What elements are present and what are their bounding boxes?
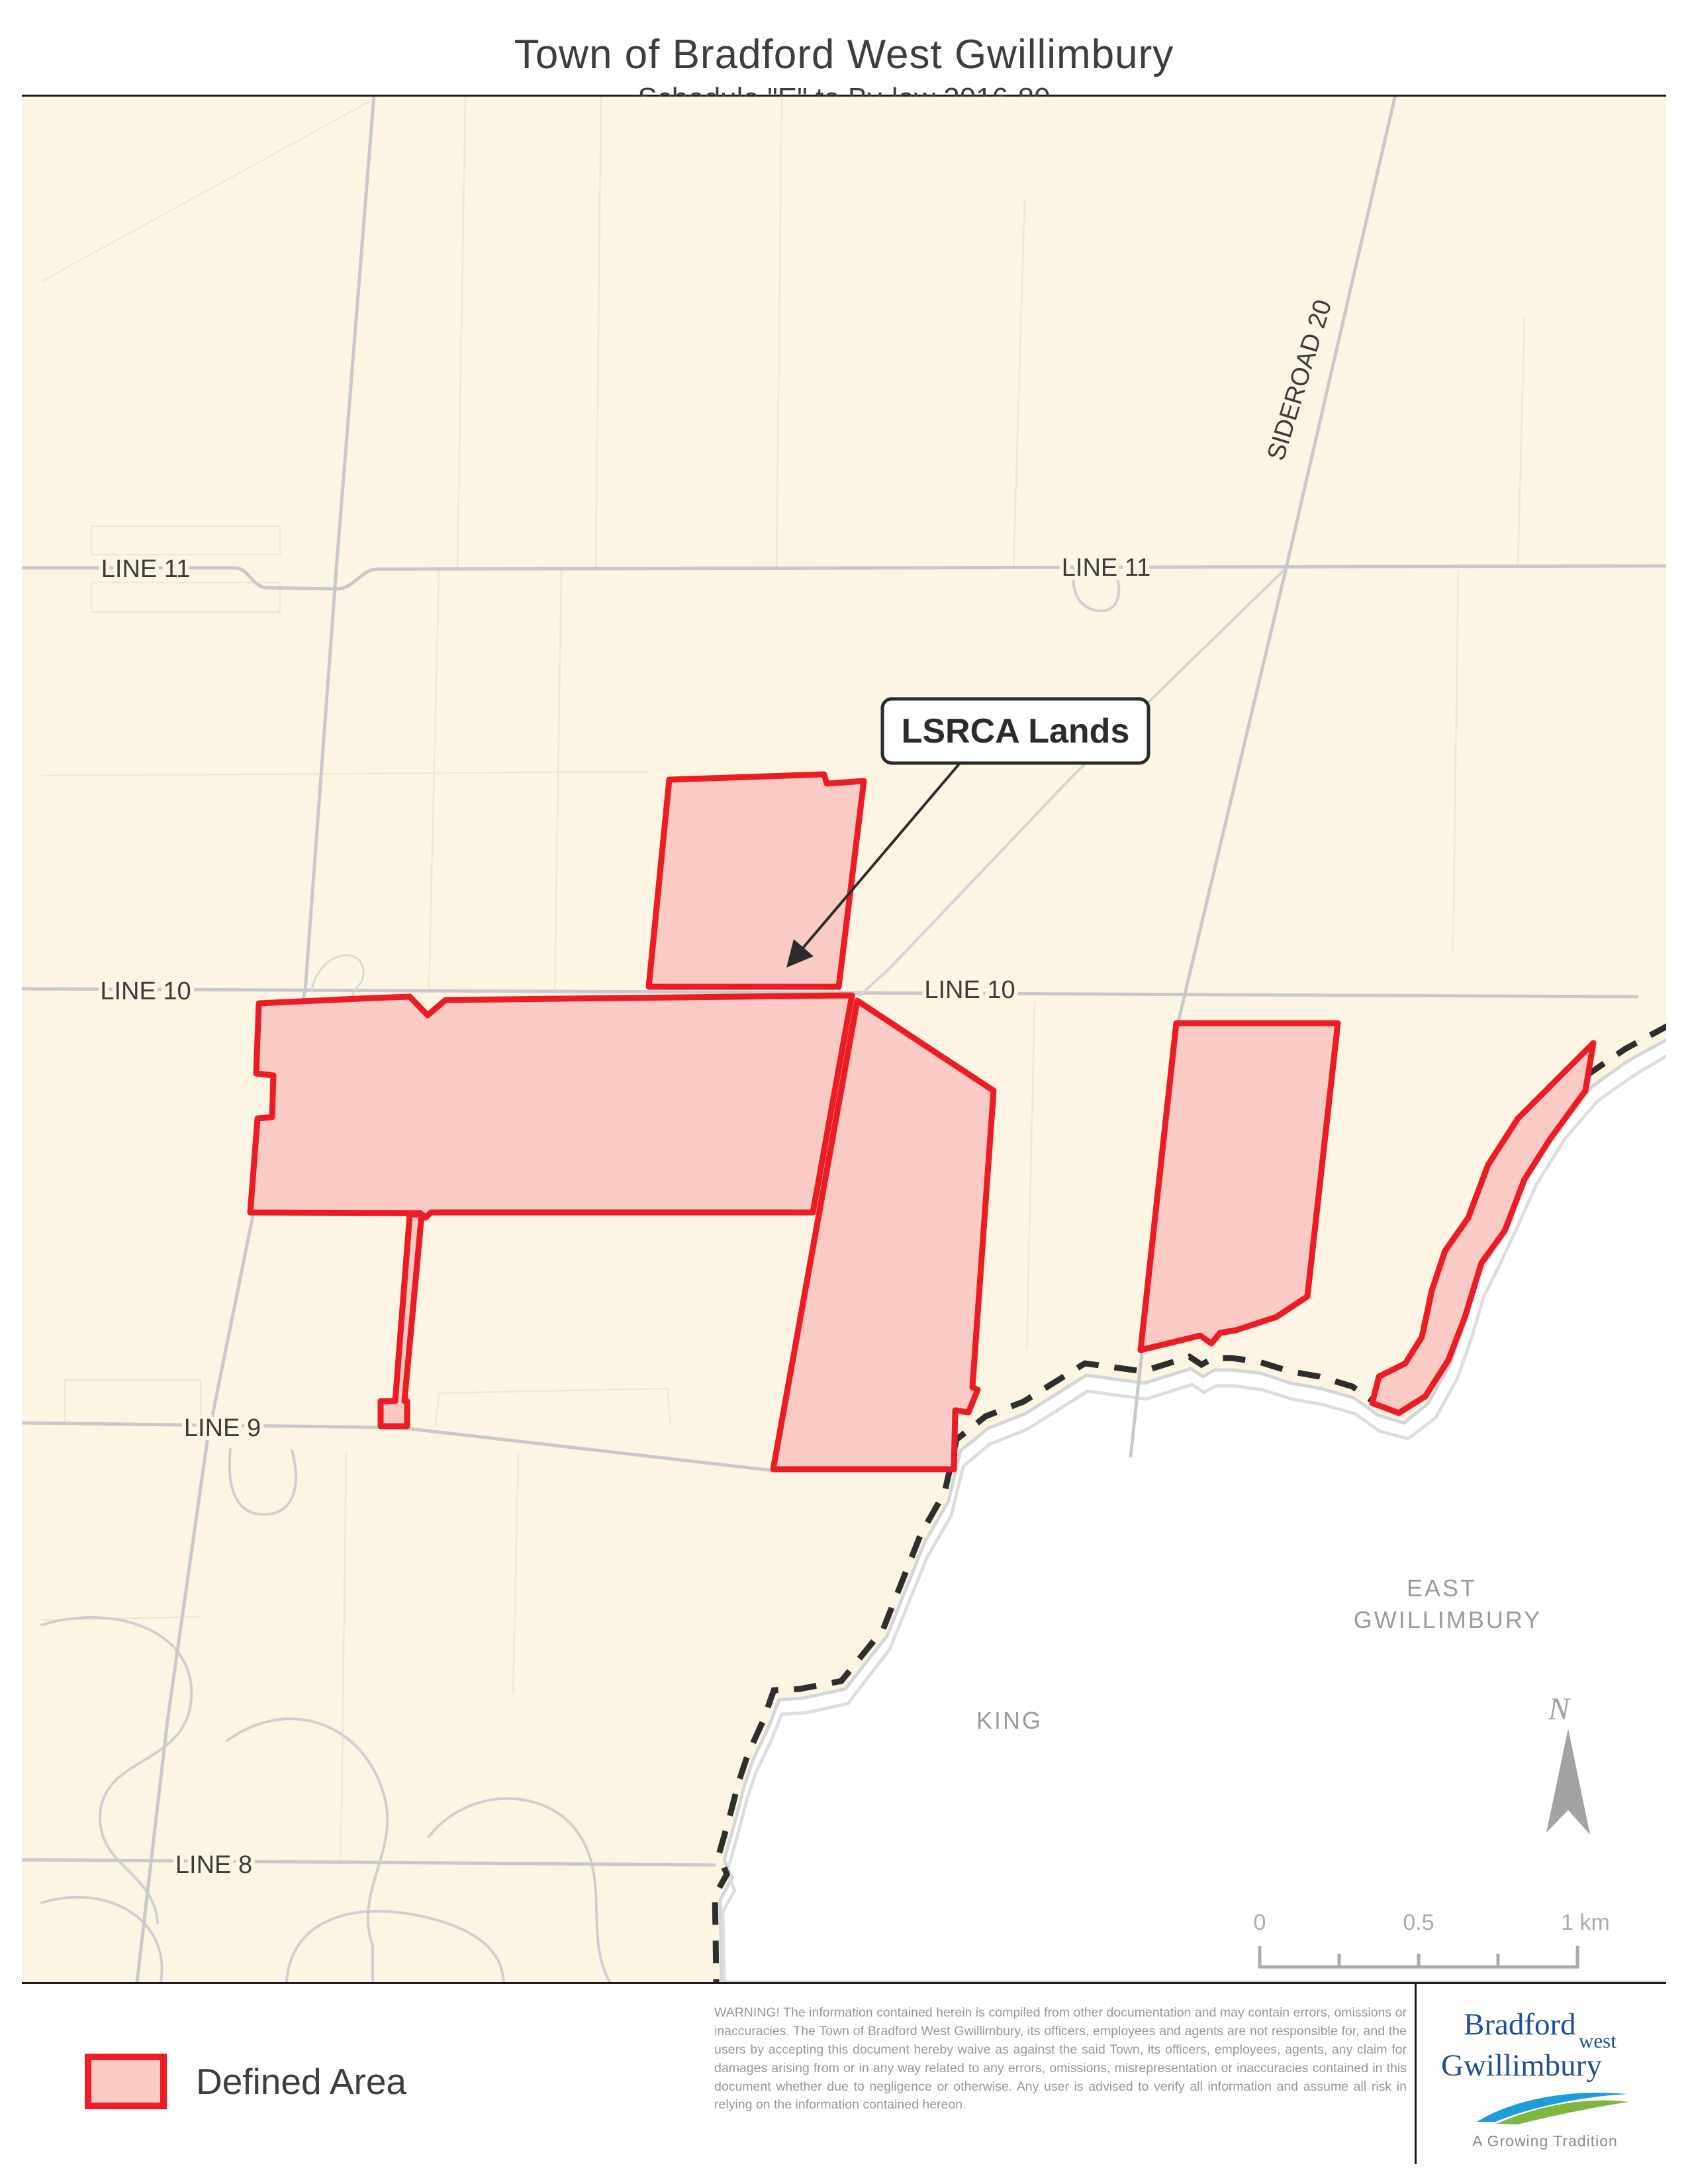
scale-label-1km: 1 km [1561, 1910, 1610, 1935]
label-line11-right: LINE 11 [1062, 554, 1150, 582]
map-canvas: LINE 11 LINE 11 LINE 10 LINE 10 LINE 9 L… [22, 97, 1666, 1982]
label-king: KING [976, 1707, 1043, 1734]
label-line11-left: LINE 11 [101, 555, 190, 583]
logo-bradford-text: Bradford [1464, 2007, 1576, 2042]
schedule-map-page: Town of Bradford West Gwillimbury Schedu… [0, 0, 1688, 2184]
label-line9: LINE 9 [184, 1414, 261, 1442]
title-block: Town of Bradford West Gwillimbury Schedu… [22, 22, 1666, 97]
footer-strip: Defined Area WARNING! The information co… [22, 1982, 1666, 2164]
label-east-gwillimbury-1: EAST [1407, 1574, 1477, 1602]
scale-label-05: 0.5 [1403, 1910, 1434, 1935]
scale-label-0: 0 [1254, 1910, 1266, 1935]
label-line8: LINE 8 [175, 1851, 252, 1879]
logo-gwillimbury-text: Gwillimbury [1441, 2048, 1602, 2083]
warning-text: WARNING! The information contained herei… [714, 2004, 1407, 2115]
footer-divider [1415, 1984, 1417, 2164]
logo-tagline: A Growing Tradition [1425, 2132, 1665, 2150]
logo-swoosh-icon [1477, 2087, 1629, 2126]
town-logo: Bradford west Gwillimbury A Growing Trad… [1425, 1988, 1665, 2161]
north-arrow-n: N [1548, 1692, 1571, 1727]
defined-area-swatch-icon [85, 2054, 167, 2109]
defined-area-large-west [250, 995, 852, 1218]
defined-area-north-parcel [649, 774, 864, 987]
label-line10-right: LINE 10 [924, 976, 1015, 1004]
page-title: Town of Bradford West Gwillimbury [22, 22, 1666, 78]
legend: Defined Area [85, 2054, 406, 2109]
map-svg: LINE 11 LINE 11 LINE 10 LINE 10 LINE 9 L… [22, 97, 1666, 1982]
label-east-gwillimbury-2: GWILLIMBURY [1354, 1606, 1542, 1633]
legend-label: Defined Area [196, 2060, 406, 2103]
callout-label: LSRCA Lands [902, 712, 1130, 751]
label-line10-left: LINE 10 [100, 978, 191, 1005]
